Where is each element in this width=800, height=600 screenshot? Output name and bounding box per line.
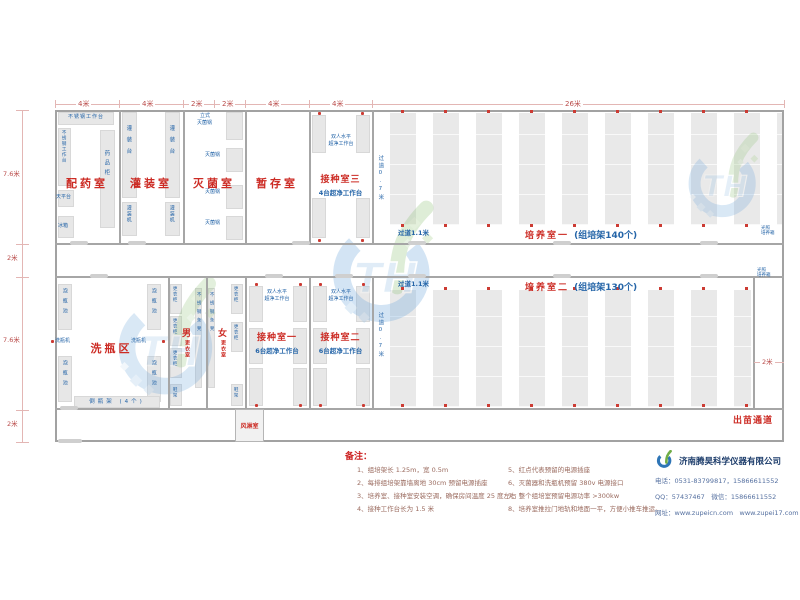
room-label-miejun: 灭菌室 — [183, 175, 245, 191]
dim-top-4: 2米 — [220, 100, 235, 108]
room-label-jiezhong1: 接种室一 — [245, 330, 309, 343]
dim-tick — [214, 100, 215, 108]
dim-top-2: 4米 — [140, 100, 155, 108]
shoe-rack-label: 鞋架 — [233, 387, 238, 398]
note-item-4: 4、接种工作台长为 1.5 米 — [357, 503, 434, 513]
vertical-sterilizer-label-l1: 立式 — [200, 114, 210, 120]
incubator-label: 光照 培养箱 — [757, 268, 771, 278]
room-label-guanzhuang: 灌装室 — [119, 175, 183, 191]
laminar-bench-label-l1: 双人水平 — [315, 135, 367, 141]
room-label-jiezhong2: 接种室二 — [309, 330, 372, 343]
soak-pool-label: 泡瓶池 — [61, 288, 67, 318]
room-label-fenglinshi: 风淋室 — [235, 421, 264, 430]
power-dot-row — [390, 224, 783, 227]
power-dot-row — [390, 110, 783, 113]
room-sub-nan: 更衣室 — [184, 340, 191, 358]
wall-v — [309, 277, 311, 409]
sterilizer-pot-label: 灭菌锅 — [205, 221, 220, 227]
bottle-rack-label: 倒瓶架 (4个) — [74, 399, 160, 405]
room-label-jiezhong3: 接种室三 — [309, 172, 372, 185]
door-mark — [70, 241, 88, 245]
worktop-label: 不锈钢工作台 — [58, 115, 114, 121]
door-mark — [292, 241, 310, 245]
aisle-11-label: 过道1.1米 — [398, 230, 429, 237]
room-label-peiyang2: 培养室二 (组培架130个) — [525, 280, 637, 293]
door-mark — [58, 439, 82, 443]
dim-tick — [55, 100, 56, 108]
dim-left-2: 2米 — [5, 254, 20, 262]
room-sub-jiezhong1: 6台超净工作台 — [245, 348, 309, 355]
dim-tick — [309, 100, 310, 108]
door-mark — [700, 241, 718, 245]
dim-tick — [245, 100, 246, 108]
laminar-bench-label-l1: 双人水平 — [251, 290, 303, 296]
dim-tick — [372, 100, 373, 108]
room-sub-nv: 更衣室 — [220, 340, 227, 358]
incubator-label: 光照 培养箱 — [761, 226, 775, 236]
door-mark — [90, 274, 108, 278]
company-web[interactable]: 网址：www.zupeicn.com www.zupei17.com — [655, 507, 799, 517]
door-mark — [265, 274, 283, 278]
shoe-rack-label: 鞋架 — [172, 387, 177, 398]
power-dot — [255, 283, 258, 286]
filling-table-label: 灌装台 — [168, 125, 174, 160]
bench-label: 不锈钢条凳 — [196, 292, 201, 335]
room-name: 培养室一 — [525, 231, 569, 241]
sterilizer-pot-label: 灭菌锅 — [205, 153, 220, 159]
power-dot-row — [390, 404, 751, 407]
power-dot — [361, 239, 364, 242]
power-dot — [51, 340, 54, 343]
power-dot — [319, 404, 322, 407]
company-phone: 电话：0531-83799817，15866611552 — [655, 475, 778, 485]
filling-machine-label: 灌装机 — [168, 205, 174, 223]
room-label-peiyang1: 培养室一 (组培架140个) — [525, 228, 637, 241]
door-mark — [335, 274, 353, 278]
company-logo-icon — [655, 450, 674, 469]
room-label-nv: 女 — [218, 326, 227, 339]
balance-table-label: 天平台 — [56, 195, 71, 201]
dim-left-1: 7.6米 — [1, 170, 22, 178]
incubator-l2: 培养箱 — [757, 273, 771, 278]
laminar-bench-label-l2: 超净工作台 — [315, 142, 367, 148]
door-mark — [700, 274, 718, 278]
note-item-1: 1、组培架长 1.25m，宽 0.5m — [357, 464, 448, 474]
wall-v — [206, 277, 208, 409]
dim-top-7: 26米 — [563, 100, 583, 108]
incubator-l2: 培养箱 — [761, 231, 775, 236]
power-dot — [255, 404, 258, 407]
dim-top-6: 4米 — [330, 100, 345, 108]
dim-left-3: 7.6米 — [1, 336, 22, 344]
soak-pool-label: 泡瓶池 — [150, 360, 156, 390]
room-count: (组培架140个) — [574, 231, 637, 241]
wall-v — [245, 277, 247, 409]
filling-table-label: 灌装台 — [125, 125, 131, 160]
dim-tick — [16, 277, 29, 278]
locker-label: 更衣柜 — [172, 286, 177, 303]
worktop-side-label: 不锈钢工作台 — [61, 130, 66, 163]
dim-top-1: 4米 — [76, 100, 91, 108]
locker-label: 更衣柜 — [233, 324, 238, 341]
power-dot — [299, 283, 302, 286]
dim-tick — [16, 410, 29, 411]
note-item-8: 8、培养室推拉门地轨和地面一平，方便小推车推运。 — [508, 503, 662, 513]
wall-v — [372, 277, 374, 409]
filling-machine-label: 灌装机 — [125, 205, 131, 223]
note-item-7: 7、整个组培室预留电源功率 >300kw — [508, 490, 619, 500]
wall-v — [168, 277, 170, 409]
door-mark — [553, 274, 571, 278]
wall-v — [753, 277, 755, 409]
door-mark — [128, 241, 146, 245]
dim-left-4: 2米 — [5, 420, 20, 428]
power-dot — [318, 239, 321, 242]
dim-tick — [119, 100, 120, 108]
door-mark — [408, 274, 426, 278]
room-name: 培养室二 — [525, 283, 569, 293]
room-label-zancun: 暂存室 — [245, 175, 309, 191]
dim-tick — [784, 100, 785, 108]
company-name: 济南腾昊科学仪器有限公司 — [679, 455, 781, 467]
room-label-nan: 男 — [182, 326, 191, 339]
dim-tick — [16, 244, 29, 245]
wall-h — [55, 408, 784, 410]
room-sub-jiezhong2: 6台超净工作台 — [309, 348, 372, 355]
laminar-bench-label-l2: 超净工作台 — [251, 297, 303, 303]
power-dot — [318, 112, 321, 115]
room-count: (组培架130个) — [574, 283, 637, 293]
dim-tick — [16, 442, 29, 443]
locker-label: 更衣柜 — [172, 318, 177, 335]
note-item-5: 5、红点代表预留的电源插座 — [508, 464, 590, 474]
soak-pool-label: 泡瓶池 — [150, 288, 156, 318]
locker-label: 更衣柜 — [172, 350, 177, 367]
dim-right: 2米 — [760, 358, 775, 366]
laminar-bench-label-l1: 双人水平 — [315, 290, 367, 296]
dim-tick — [183, 100, 184, 108]
dim-top-5: 4米 — [266, 100, 281, 108]
power-dot — [362, 283, 365, 286]
vertical-sterilizer-label-l2: 灭菌锅 — [197, 121, 212, 127]
laminar-bench-label-l2: 超净工作台 — [315, 297, 367, 303]
door-mark — [408, 241, 426, 245]
room-label-peiyao: 配药室 — [55, 175, 119, 191]
aisle-07-label: 过道0.7米 — [377, 312, 383, 359]
note-item-6: 6、灭菌器和洗瓶机预留 380v 电源接口 — [508, 477, 624, 487]
door-mark — [60, 406, 78, 410]
dim-line-top — [55, 104, 785, 105]
room-sub-jiezhong3: 4台超净工作台 — [309, 190, 372, 197]
wall-v — [372, 110, 374, 244]
company-qq: QQ：57437467 微信：15866611552 — [655, 491, 776, 501]
aisle-11-label: 过道1.1米 — [398, 281, 429, 288]
dim-tick — [16, 110, 29, 111]
power-dot — [319, 283, 322, 286]
door-mark — [553, 241, 571, 245]
notes-title: 备注： — [345, 449, 372, 462]
power-dot — [361, 112, 364, 115]
bench-label: 不锈钢条凳 — [209, 292, 214, 335]
power-dot — [362, 404, 365, 407]
soak-pool-label: 泡瓶池 — [61, 360, 67, 390]
note-item-2: 2、每排组培架靠墙离地 30cm 预留电源插座 — [357, 477, 487, 487]
note-item-3: 3、培养室、接种室安装空调，确保房间温度 25 度左右 — [357, 490, 517, 500]
fridge-label: 冰箱 — [58, 224, 68, 230]
room-label-xipingqu: 洗瓶区 — [55, 340, 168, 356]
room-label-chumiao: 出苗通道 — [733, 413, 773, 426]
aisle-07-label: 过道0.7米 — [377, 155, 383, 202]
locker-label: 更衣柜 — [233, 286, 238, 303]
dim-top-3: 2米 — [189, 100, 204, 108]
power-dot — [299, 404, 302, 407]
